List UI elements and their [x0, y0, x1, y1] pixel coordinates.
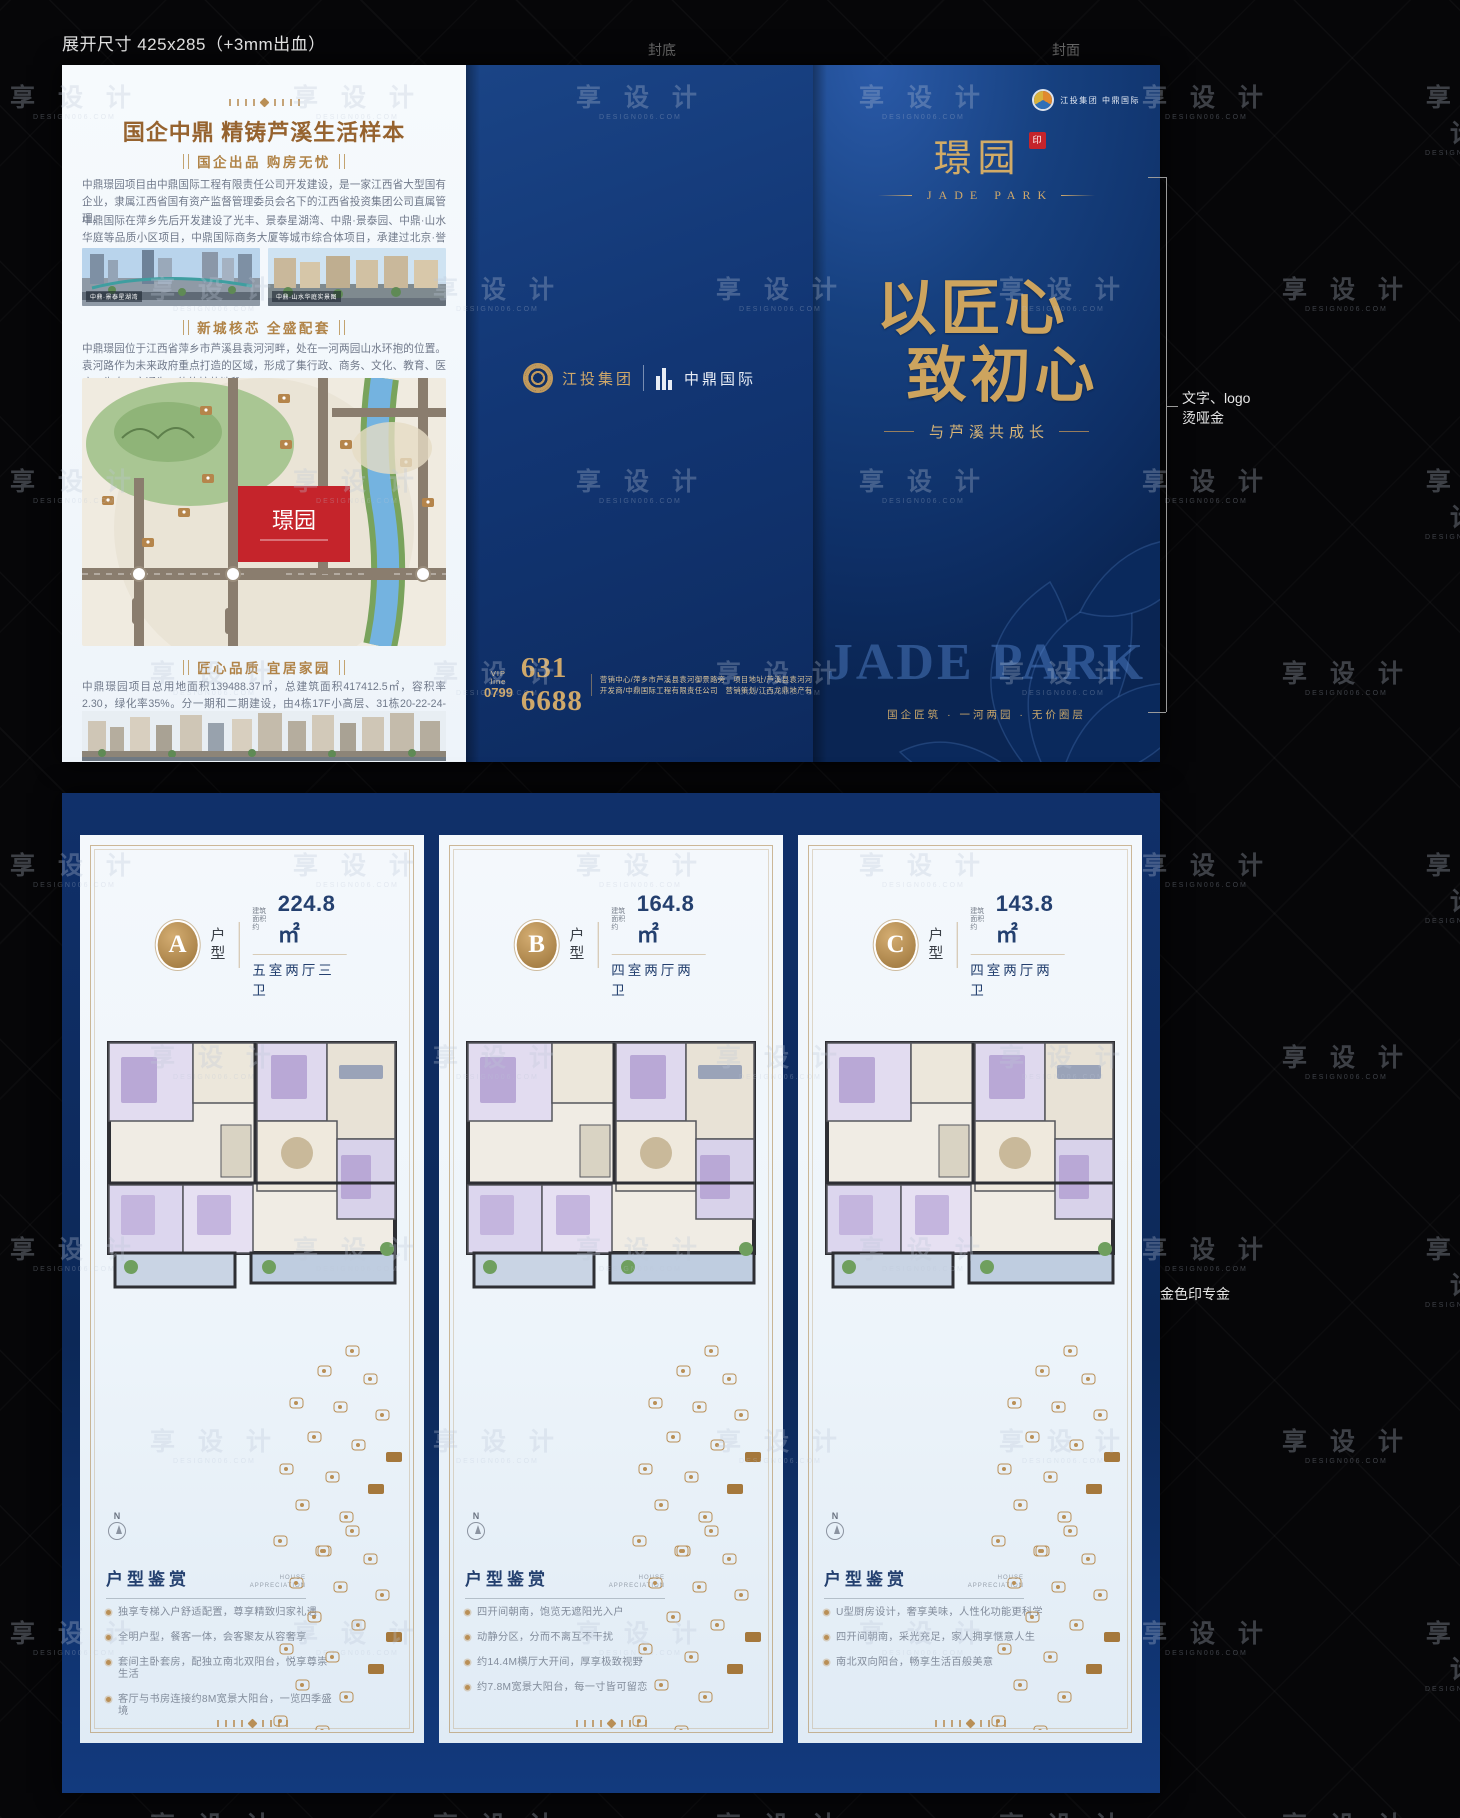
compass-icon: N: [824, 1511, 846, 1540]
section-badge-3: 匠心品质 宜居家园: [82, 657, 446, 677]
site-watermark: 享 设 计DESIGN006.COM: [1282, 270, 1411, 313]
area-label: 建筑面积约: [970, 908, 991, 932]
plan-letter-badge: C: [876, 922, 916, 968]
logo-divider: [643, 365, 644, 391]
corner-logo-text: 江投集团 中鼎国际: [1060, 95, 1140, 106]
group-logo-text: 江投集团: [562, 368, 634, 389]
area-label: 建筑面积约: [252, 908, 273, 932]
section-title: 户型鉴赏: [465, 1565, 549, 1590]
floorplan-drawing: [819, 1015, 1121, 1315]
foil-bracket-tick: [1148, 712, 1166, 713]
contact-line-1: 营销中心/萍乡市芦溪县袁河御景路旁 项目地址/芦溪县袁河河畔: [600, 674, 813, 685]
brand-name-cn: 璟园: [927, 127, 1021, 182]
site-watermark: 享 设 计DESIGN006.COM: [1282, 1806, 1411, 1818]
site-watermark: 享 设 计DESIGN006.COM: [1425, 846, 1460, 925]
site-watermark: 享 设 计DESIGN006.COM: [1425, 1614, 1460, 1693]
contact-info: 营销中心/萍乡市芦溪县袁河御景路旁 项目地址/芦溪县袁河河畔 开发商/中鼎国际工…: [591, 674, 813, 696]
main-slogan: 以匠心 致初心: [813, 277, 1160, 409]
site-watermark: 享 设 计DESIGN006.COM: [1142, 1614, 1271, 1657]
photo-caption: 中鼎·山水华庭实景图: [272, 291, 341, 302]
panel-title: 国企中鼎 精铸芦溪生活样本: [82, 115, 446, 147]
floorplan-drawing: [101, 1015, 403, 1315]
design-proof-sheet: 展开尺寸 425x285（+3mm出血） 封底 封面 国企中鼎 精铸芦溪生活样本…: [0, 0, 1460, 1818]
group-logo-icon: [523, 363, 553, 393]
plan-layout: 四室两厅两卫: [611, 954, 705, 999]
plan-type-label: 户型: [210, 927, 225, 963]
foil-bracket-line: [1166, 177, 1167, 712]
corner-logos: 江投集团 中鼎国际: [1034, 91, 1140, 109]
back-cover-panel: 江投集团 中鼎国际 VIP line 0799 631 6688 营销中心/萍乡…: [466, 65, 813, 762]
site-watermark: 享 设 计DESIGN006.COM: [716, 1806, 845, 1818]
floorplan-drawing: [460, 1015, 762, 1315]
plan-letter-badge: A: [158, 922, 198, 968]
project-photos: 中鼎·景泰星湖湾 中鼎·山水华庭实景图: [82, 248, 446, 306]
header-divider: [238, 922, 239, 968]
vip-line-tag: VIP line 0799: [484, 670, 513, 701]
front-cover-label: 封面: [1052, 40, 1080, 60]
slogan-line-2: 致初心: [829, 344, 1160, 409]
pinwheel-logo-icon: [1034, 91, 1052, 109]
gold-ink-note: 金色印专金: [1160, 1284, 1230, 1304]
back-cover-label: 封底: [648, 40, 676, 60]
plan-type-label: 户型: [928, 927, 943, 963]
plan-type-label: 户型: [569, 927, 584, 963]
area-label: 建筑面积约: [611, 908, 632, 932]
map-project-label: 璟园: [272, 508, 316, 533]
plan-header: A 户型 建筑面积约 224.8㎡ 五室两厅三卫: [158, 891, 347, 999]
site-watermark: 享 设 计DESIGN006.COM: [1425, 78, 1460, 157]
badge-text: 匠心品质 宜居家园: [197, 657, 331, 677]
compass-icon: N: [465, 1511, 487, 1540]
contact-line-2: 开发商/中鼎国际工程有限责任公司 营销策划/江西龙鼎地产有限公司: [600, 685, 813, 696]
site-watermark: 享 设 计DESIGN006.COM: [1282, 1422, 1411, 1465]
plan-header: C 户型 建筑面积约 143.8㎡ 四室两厅两卫: [876, 891, 1065, 999]
plan-area: 224.8㎡: [278, 891, 347, 949]
plan-area: 143.8㎡: [996, 891, 1065, 949]
compass-icon: N: [106, 1511, 128, 1540]
site-watermark: 享 设 计DESIGN006.COM: [150, 1806, 279, 1818]
badge-text: 国企出品 购房无忧: [197, 151, 331, 171]
sub-slogan-text: 与芦溪共成长: [924, 421, 1049, 442]
siteplan-scatter-art: [260, 1340, 410, 1730]
floorplan-panel-b: B 户型 建筑面积约 164.8㎡ 四室两厅两卫 N 户型鉴赏 HOUSEAPP…: [439, 835, 783, 1743]
company-logo-icon: [653, 366, 675, 390]
site-watermark: 享 设 计DESIGN006.COM: [1282, 654, 1411, 697]
floorplan-panel-c: C 户型 建筑面积约 143.8㎡ 四室两厅两卫 N 户型鉴赏 HOUSEAPP…: [798, 835, 1142, 1743]
plan-layout: 五室两厅三卫: [252, 954, 346, 999]
section-title: 户型鉴赏: [106, 1565, 190, 1590]
brochure-inner-side: A 户型 建筑面积约 224.8㎡ 五室两厅三卫 N 户型鉴赏 HOUSEAPP…: [62, 793, 1160, 1793]
section-badge-1: 国企出品 购房无忧: [82, 151, 446, 171]
info-panel: 国企中鼎 精铸芦溪生活样本 国企出品 购房无忧 中鼎璟园项目由中鼎国际工程有限责…: [62, 65, 466, 762]
site-watermark: 享 设 计DESIGN006.COM: [433, 1806, 562, 1818]
unfolded-size-note: 展开尺寸 425x285（+3mm出血）: [62, 30, 326, 55]
header-divider: [597, 922, 598, 968]
siteplan-scatter-art: [978, 1340, 1128, 1730]
vip-line-label: VIP line: [484, 670, 513, 687]
section-title: 户型鉴赏: [824, 1565, 908, 1590]
badge-text: 新城核芯 全盛配套: [197, 317, 331, 337]
photo-residential: 中鼎·山水华庭实景图: [268, 248, 446, 306]
brand-watermark-en: JADE PARK: [813, 633, 1160, 692]
ornament-divider: [80, 1720, 424, 1727]
site-watermark: 享 设 计DESIGN006.COM: [999, 1806, 1128, 1818]
ornament-divider: [439, 1720, 783, 1727]
brand-name-en: JADE PARK: [920, 188, 1053, 203]
foil-bracket-tick: [1148, 177, 1166, 178]
photo-caption: 中鼎·景泰星湖湾: [86, 291, 142, 302]
project-rendering: [82, 711, 446, 761]
header-divider: [956, 922, 957, 968]
brand-block: 璟园 印 JADE PARK: [813, 127, 1160, 203]
photo-cityscape: 中鼎·景泰星湖湾: [82, 248, 260, 306]
location-map: 璟园: [82, 378, 446, 646]
foil-bracket-tick: [1166, 406, 1178, 407]
contact-block: VIP line 0799 631 6688 营销中心/萍乡市芦溪县袁河御景路旁…: [484, 652, 813, 718]
company-logo-text: 中鼎国际: [684, 368, 756, 389]
plan-area: 164.8㎡: [637, 891, 706, 949]
floorplan-panel-a: A 户型 建筑面积约 224.8㎡ 五室两厅三卫 N 户型鉴赏 HOUSEAPP…: [80, 835, 424, 1743]
ornament-divider: [82, 99, 446, 106]
site-watermark: 享 设 计DESIGN006.COM: [1425, 462, 1460, 541]
site-watermark: 享 设 计DESIGN006.COM: [1142, 846, 1271, 889]
site-watermark: 享 设 计DESIGN006.COM: [1282, 1038, 1411, 1081]
cover-tagline: 国企匠筑 · 一河两园 · 无价圈层: [813, 707, 1160, 722]
foil-stamping-note: 文字、logo 烫哑金: [1182, 388, 1250, 428]
siteplan-scatter-art: [619, 1340, 769, 1730]
front-cover-panel: 江投集团 中鼎国际 璟园 印 JADE PARK 以匠心 致初心 与芦溪共成长 …: [813, 65, 1160, 762]
slogan-line-1: 以匠心: [813, 277, 1146, 342]
brochure-outer-side: 国企中鼎 精铸芦溪生活样本 国企出品 购房无忧 中鼎璟园项目由中鼎国际工程有限责…: [62, 65, 1160, 762]
ornament-divider: [798, 1720, 1142, 1727]
plan-header: B 户型 建筑面积约 164.8㎡ 四室两厅两卫: [517, 891, 706, 999]
site-watermark: 享 设 计DESIGN006.COM: [1142, 78, 1271, 121]
plan-layout: 四室两厅两卫: [970, 954, 1064, 999]
phone-number: 631 6688: [521, 652, 583, 718]
plan-letter-badge: B: [517, 922, 557, 968]
site-watermark: 享 设 计DESIGN006.COM: [1142, 1230, 1271, 1273]
section-badge-2: 新城核芯 全盛配套: [82, 317, 446, 337]
site-watermark: 享 设 计DESIGN006.COM: [1142, 462, 1271, 505]
site-watermark: 享 设 计DESIGN006.COM: [1425, 1230, 1460, 1309]
area-code: 0799: [484, 686, 513, 700]
brand-logos: 江投集团 中鼎国际: [466, 363, 813, 393]
sub-slogan: 与芦溪共成长: [813, 421, 1160, 442]
red-seal-icon: 印: [1029, 132, 1046, 149]
